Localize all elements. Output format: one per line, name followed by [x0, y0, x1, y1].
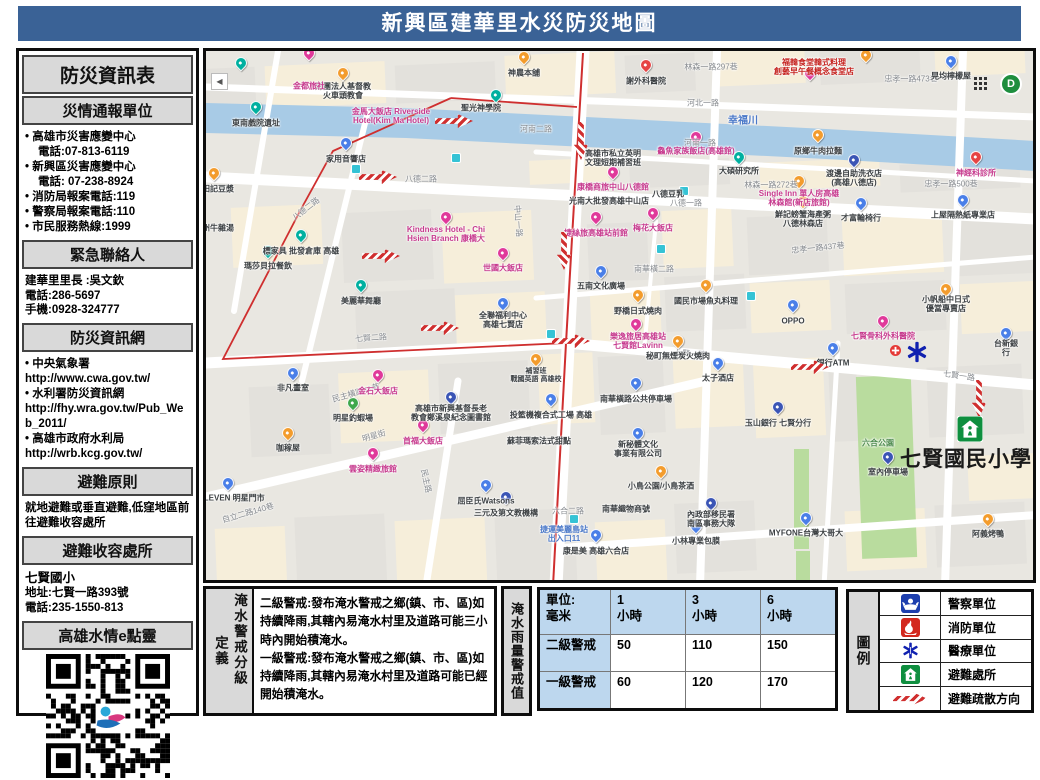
report-line: • 市民服務熱線:1999 [25, 220, 190, 235]
unit-header-cell: 單位: 毫米 [539, 589, 611, 635]
section-contact-body: 建華里里長 :吳文欽 電話:286-5697 手機:0928-324777 [21, 271, 194, 322]
cell-value: 110 [686, 635, 761, 672]
legend-row-shelter: 避難處所 [880, 663, 1031, 687]
qr-code [37, 654, 179, 778]
rain-threshold-vertical-label: 淹水雨量警戒值 [501, 586, 532, 716]
legend-vertical-label: 圖例 [849, 592, 878, 710]
legend-label: 警察單位 [941, 592, 1031, 615]
legend-label: 避難疏散方向 [941, 687, 1031, 710]
poster-root: { "header": { "title": "新興區建華里水災防災地圖" },… [0, 0, 1040, 720]
map-base [206, 51, 1036, 583]
transit-icon [679, 186, 689, 196]
table-row: 二級警戒 50 110 150 [539, 635, 837, 672]
contact-line: 手機:0928-324777 [25, 303, 190, 318]
web-url: http://fhy.wra.gov.tw/Pub_Web_2011/ [25, 402, 190, 432]
legend-label: 消防單位 [941, 616, 1031, 639]
report-line: • 警察局報案電話:110 [25, 205, 190, 220]
info-panel: 防災資訊表 災情通報單位 • 高雄市災害應變中心 電話:07-813-6119 … [16, 48, 199, 716]
transit-icon [656, 244, 666, 254]
web-line: • 中央氣象署 [25, 357, 190, 372]
shelter-line: 地址:七賢一路393號 [25, 586, 190, 601]
legend-label: 避難處所 [941, 663, 1031, 686]
web-line: • 水利署防災資訊網 [25, 387, 190, 402]
legend-label-text: 圖例 [854, 635, 874, 667]
legend-label: 醫療單位 [941, 640, 1031, 663]
shelter-icon [880, 663, 941, 686]
contact-line: 建華里里長 :吳文欽 [25, 274, 190, 289]
rain-threshold-table: 單位: 毫米 1 小時 3 小時 6 小時 二級警戒 50 110 150 一級… [537, 587, 838, 711]
medical-icon [906, 341, 928, 368]
transit-icon [746, 291, 756, 301]
definition-level2: 二級警戒:發布淹水警戒之鄉(鎮、市、區)如持續降雨,其轄內易淹水村里及道路可能三… [260, 594, 488, 649]
header-cell-1h: 1 小時 [611, 589, 686, 635]
shelter-line: 電話:235-1550-813 [25, 601, 190, 616]
header-cell-3h: 3 小時 [686, 589, 761, 635]
legend-row-police: 警察單位 [880, 592, 1031, 616]
legend-row-fire: 消防單位 [880, 616, 1031, 640]
panel-title: 防災資訊表 [22, 55, 193, 94]
row-label: 二級警戒 [539, 635, 611, 672]
transit-icon [351, 164, 361, 174]
report-line: • 消防局報案電話:119 [25, 190, 190, 205]
section-contact-header: 緊急聯絡人 [22, 240, 193, 269]
web-line: • 高雄市政府水利局 [25, 432, 190, 447]
definition-level1: 一級警戒:發布淹水警戒之鄉(鎮、市、區)如持續降雨,其轄內易淹水村里及道路可能已… [260, 649, 488, 704]
evacuation-arrow-icon [880, 687, 941, 710]
section-web-header: 防災資訊網 [22, 323, 193, 352]
legend-box: 圖例 警察單位 消防單位 醫療單位 避難處所 [846, 589, 1034, 713]
page-title: 新興區建華里水災防災地圖 [18, 6, 1021, 41]
legend-table: 警察單位 消防單位 醫療單位 避難處所 避難疏散方向 [878, 592, 1031, 710]
section-report-body: • 高雄市災害應變中心 電話:07-813-6119 • 新興區災害應變中心 電… [21, 127, 194, 238]
section-principle-header: 避難原則 [22, 467, 193, 496]
legend-row-medical: 醫療單位 [880, 640, 1031, 664]
section-principle-body: 就地避難或垂直避難,低窪地區前往避難收容處所 [21, 498, 194, 534]
definition-label-text: 淹水警戒分級 [229, 593, 249, 686]
report-line: • 高雄市災害應變中心 [25, 130, 190, 145]
definition-vertical-label: 淹水警戒分級 定義 [206, 589, 254, 713]
map-area[interactable]: 幸福川河北一路河南一路河南二路八德二路八德二路八德一路七賢二路七賢一路七賢一路中… [203, 48, 1036, 583]
transit-icon [451, 153, 461, 163]
qr-container [21, 652, 194, 780]
transit-icon [569, 514, 579, 524]
shelter-icon [957, 416, 983, 447]
table-row: 一級警戒 60 120 170 [539, 672, 837, 710]
section-web-body: • 中央氣象署 http://www.cwa.gov.tw/ • 水利署防災資訊… [21, 354, 194, 465]
contact-line: 電話:286-5697 [25, 289, 190, 304]
web-url: http://www.cwa.gov.tw/ [25, 372, 190, 387]
row-label: 一級警戒 [539, 672, 611, 710]
section-shelter-body: 七賢國小 地址:七賢一路393號 電話:235-1550-813 [21, 567, 194, 619]
header-cell-6h: 6 小時 [761, 589, 837, 635]
transit-icon [546, 329, 556, 339]
police-icon [880, 592, 941, 615]
report-line: 電話: 07-238-8924 [25, 175, 190, 190]
medical-icon [880, 640, 941, 663]
cell-value: 50 [611, 635, 686, 672]
rain-threshold-label-text: 淹水雨量警戒值 [507, 602, 526, 700]
cell-value: 120 [686, 672, 761, 710]
fire-icon [880, 616, 941, 639]
flood-definition-box: 淹水警戒分級 定義 二級警戒:發布淹水警戒之鄉(鎮、市、區)如持續降雨,其轄內易… [203, 586, 497, 716]
d-badge-icon: D [1000, 73, 1022, 95]
shelter-name: 七賢國小 [25, 570, 190, 586]
map-canvas[interactable]: 幸福川河北一路河南一路河南二路八德二路八德二路八德一路七賢二路七賢一路七賢一路中… [206, 51, 1033, 580]
cell-value: 170 [761, 672, 837, 710]
definition-text: 二級警戒:發布淹水警戒之鄉(鎮、市、區)如持續降雨,其轄內易淹水村里及道路可能三… [254, 589, 494, 713]
section-qr-header: 高雄水情e點靈 [22, 621, 193, 650]
cell-value: 150 [761, 635, 837, 672]
hospital-icon [890, 343, 901, 361]
report-line: 電話:07-813-6119 [25, 145, 190, 160]
legend-row-arrow: 避難疏散方向 [880, 687, 1031, 710]
section-report-header: 災情通報單位 [22, 96, 193, 125]
report-line: • 新興區災害應變中心 [25, 160, 190, 175]
map-grid-icon [974, 77, 988, 96]
table-header-row: 單位: 毫米 1 小時 3 小時 6 小時 [539, 589, 837, 635]
definition-label-text2: 定義 [210, 636, 230, 667]
section-shelter-header: 避難收容處所 [22, 536, 193, 565]
web-url: http://wrb.kcg.gov.tw/ [25, 447, 190, 462]
map-back-button[interactable]: ◀ [211, 73, 228, 90]
cell-value: 60 [611, 672, 686, 710]
